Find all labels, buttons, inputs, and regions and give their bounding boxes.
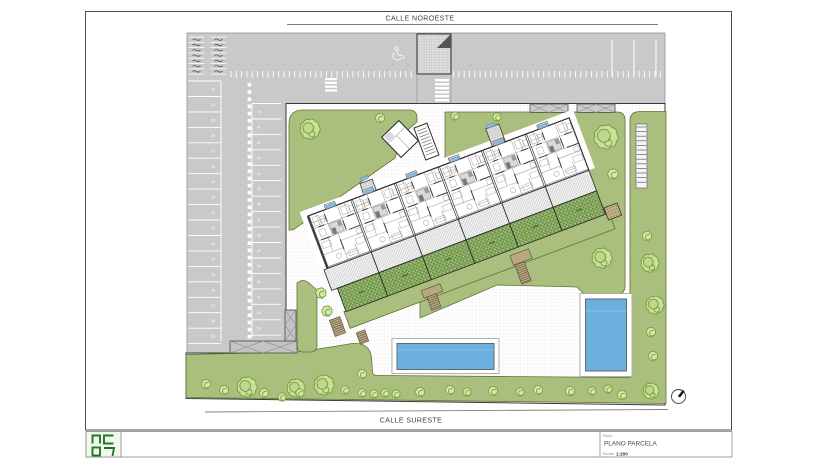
svg-text:4: 4	[563, 63, 565, 67]
svg-text:34: 34	[211, 257, 215, 261]
svg-text:31: 31	[211, 211, 215, 215]
svg-text:36: 36	[211, 288, 215, 292]
svg-text:9: 9	[485, 63, 487, 67]
svg-text:37: 37	[211, 304, 215, 308]
svg-text:PLANO PARCELA: PLANO PARCELA	[604, 441, 658, 448]
svg-text:1: 1	[609, 63, 611, 67]
svg-text:48: 48	[257, 234, 261, 238]
svg-text:40: 40	[257, 110, 261, 114]
svg-text:13: 13	[376, 63, 380, 67]
svg-text:-1: -1	[640, 63, 643, 67]
svg-text:24: 24	[211, 103, 215, 107]
svg-text:30: 30	[211, 196, 215, 200]
svg-text:52: 52	[257, 295, 261, 299]
svg-text:1:200: 1:200	[616, 452, 628, 457]
svg-text:38: 38	[211, 319, 215, 323]
svg-text:15: 15	[345, 63, 349, 67]
svg-text:19: 19	[283, 63, 287, 67]
svg-text:46: 46	[257, 203, 261, 207]
svg-text:14: 14	[360, 63, 364, 67]
svg-text:10: 10	[469, 63, 473, 67]
svg-text:28: 28	[211, 165, 215, 169]
svg-text:8: 8	[501, 63, 503, 67]
svg-text:23: 23	[211, 88, 215, 92]
svg-text:44: 44	[257, 172, 261, 176]
svg-text:39: 39	[211, 335, 215, 339]
svg-text:7: 7	[516, 63, 518, 67]
svg-text:51: 51	[257, 280, 261, 284]
svg-text:3: 3	[578, 63, 580, 67]
svg-text:22: 22	[236, 63, 240, 67]
svg-text:17: 17	[314, 63, 318, 67]
svg-text:21: 21	[252, 63, 256, 67]
svg-text:49: 49	[257, 249, 261, 253]
svg-text:20: 20	[267, 63, 271, 67]
svg-text:41: 41	[257, 125, 261, 129]
svg-text:27: 27	[211, 149, 215, 153]
svg-text:47: 47	[257, 218, 261, 222]
svg-text:32: 32	[211, 227, 215, 231]
svg-text:42: 42	[257, 141, 261, 145]
svg-text:53: 53	[257, 311, 261, 315]
svg-text:33: 33	[211, 242, 215, 246]
svg-text:5: 5	[547, 63, 549, 67]
svg-text:11: 11	[407, 63, 411, 67]
svg-text:26: 26	[211, 134, 215, 138]
svg-text:50: 50	[257, 265, 261, 269]
svg-text:12: 12	[391, 63, 395, 67]
svg-text:CALLE NOROESTE: CALLE NOROESTE	[385, 16, 454, 23]
svg-text:0: 0	[625, 63, 627, 67]
svg-text:Escala:: Escala:	[603, 452, 615, 456]
svg-text:CALLE SURESTE: CALLE SURESTE	[380, 418, 442, 425]
svg-text:16: 16	[329, 63, 333, 67]
svg-text:Plano:: Plano:	[603, 434, 613, 438]
svg-text:25: 25	[211, 118, 215, 122]
svg-text:54: 54	[257, 326, 261, 330]
svg-text:2: 2	[594, 63, 596, 67]
svg-text:29: 29	[211, 180, 215, 184]
svg-text:35: 35	[211, 273, 215, 277]
svg-text:18: 18	[298, 63, 302, 67]
svg-text:43: 43	[257, 156, 261, 160]
svg-text:6: 6	[532, 63, 534, 67]
svg-text:45: 45	[257, 187, 261, 191]
